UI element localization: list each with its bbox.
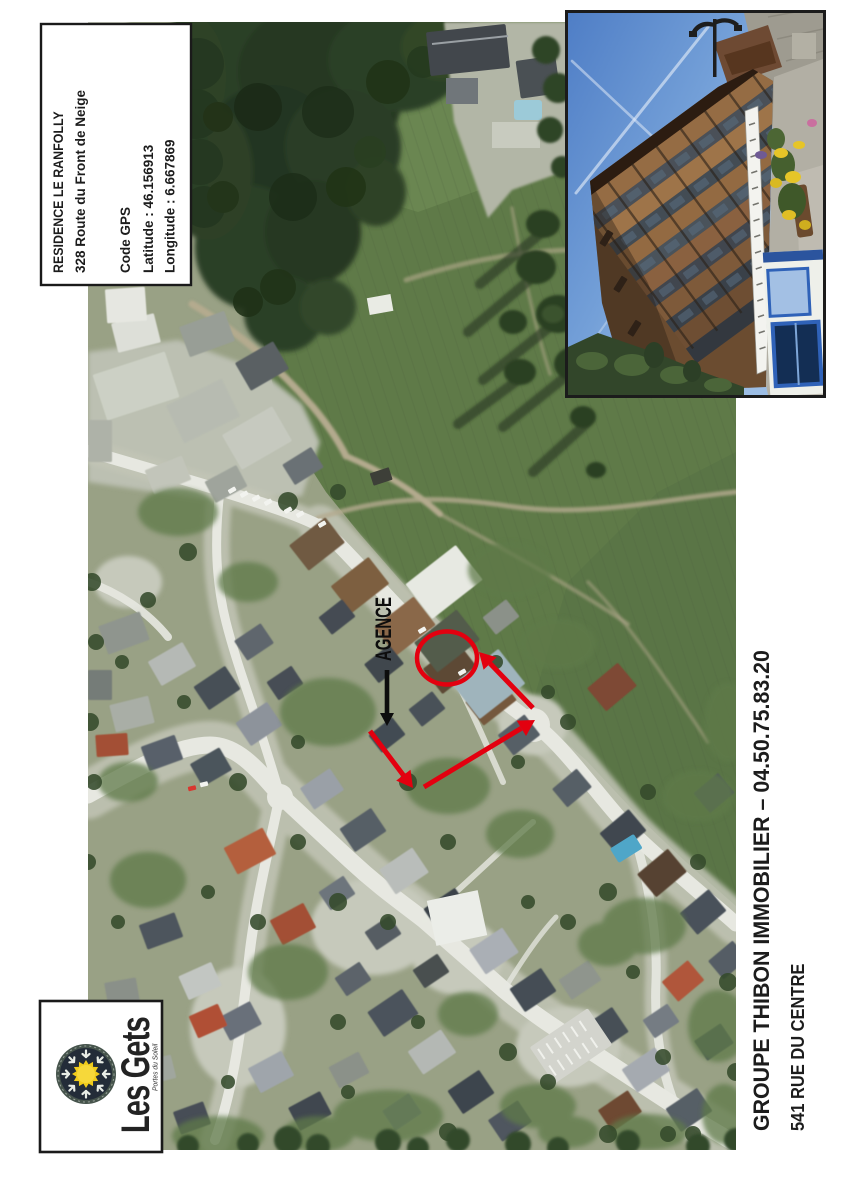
svg-text:Longitude : 6.667869: Longitude : 6.667869: [163, 139, 178, 273]
svg-text:RESIDENCE LE RANFOLLY: RESIDENCE LE RANFOLLY: [51, 111, 67, 273]
svg-text:Portes du Soleil: Portes du Soleil: [151, 1043, 159, 1091]
svg-text:328 Route du Front de Neige: 328 Route du Front de Neige: [73, 89, 88, 273]
svg-text:Latitude : 46.156913: Latitude : 46.156913: [141, 144, 156, 273]
svg-text:541 RUE DU CENTRE: 541 RUE DU CENTRE: [787, 964, 808, 1131]
svg-text:GROUPE THIBON IMMOBILIER – 04.: GROUPE THIBON IMMOBILIER – 04.50.75.83.2…: [748, 650, 774, 1131]
svg-text:AGENCE: AGENCE: [371, 597, 396, 661]
svg-text:Code GPS: Code GPS: [118, 207, 133, 273]
